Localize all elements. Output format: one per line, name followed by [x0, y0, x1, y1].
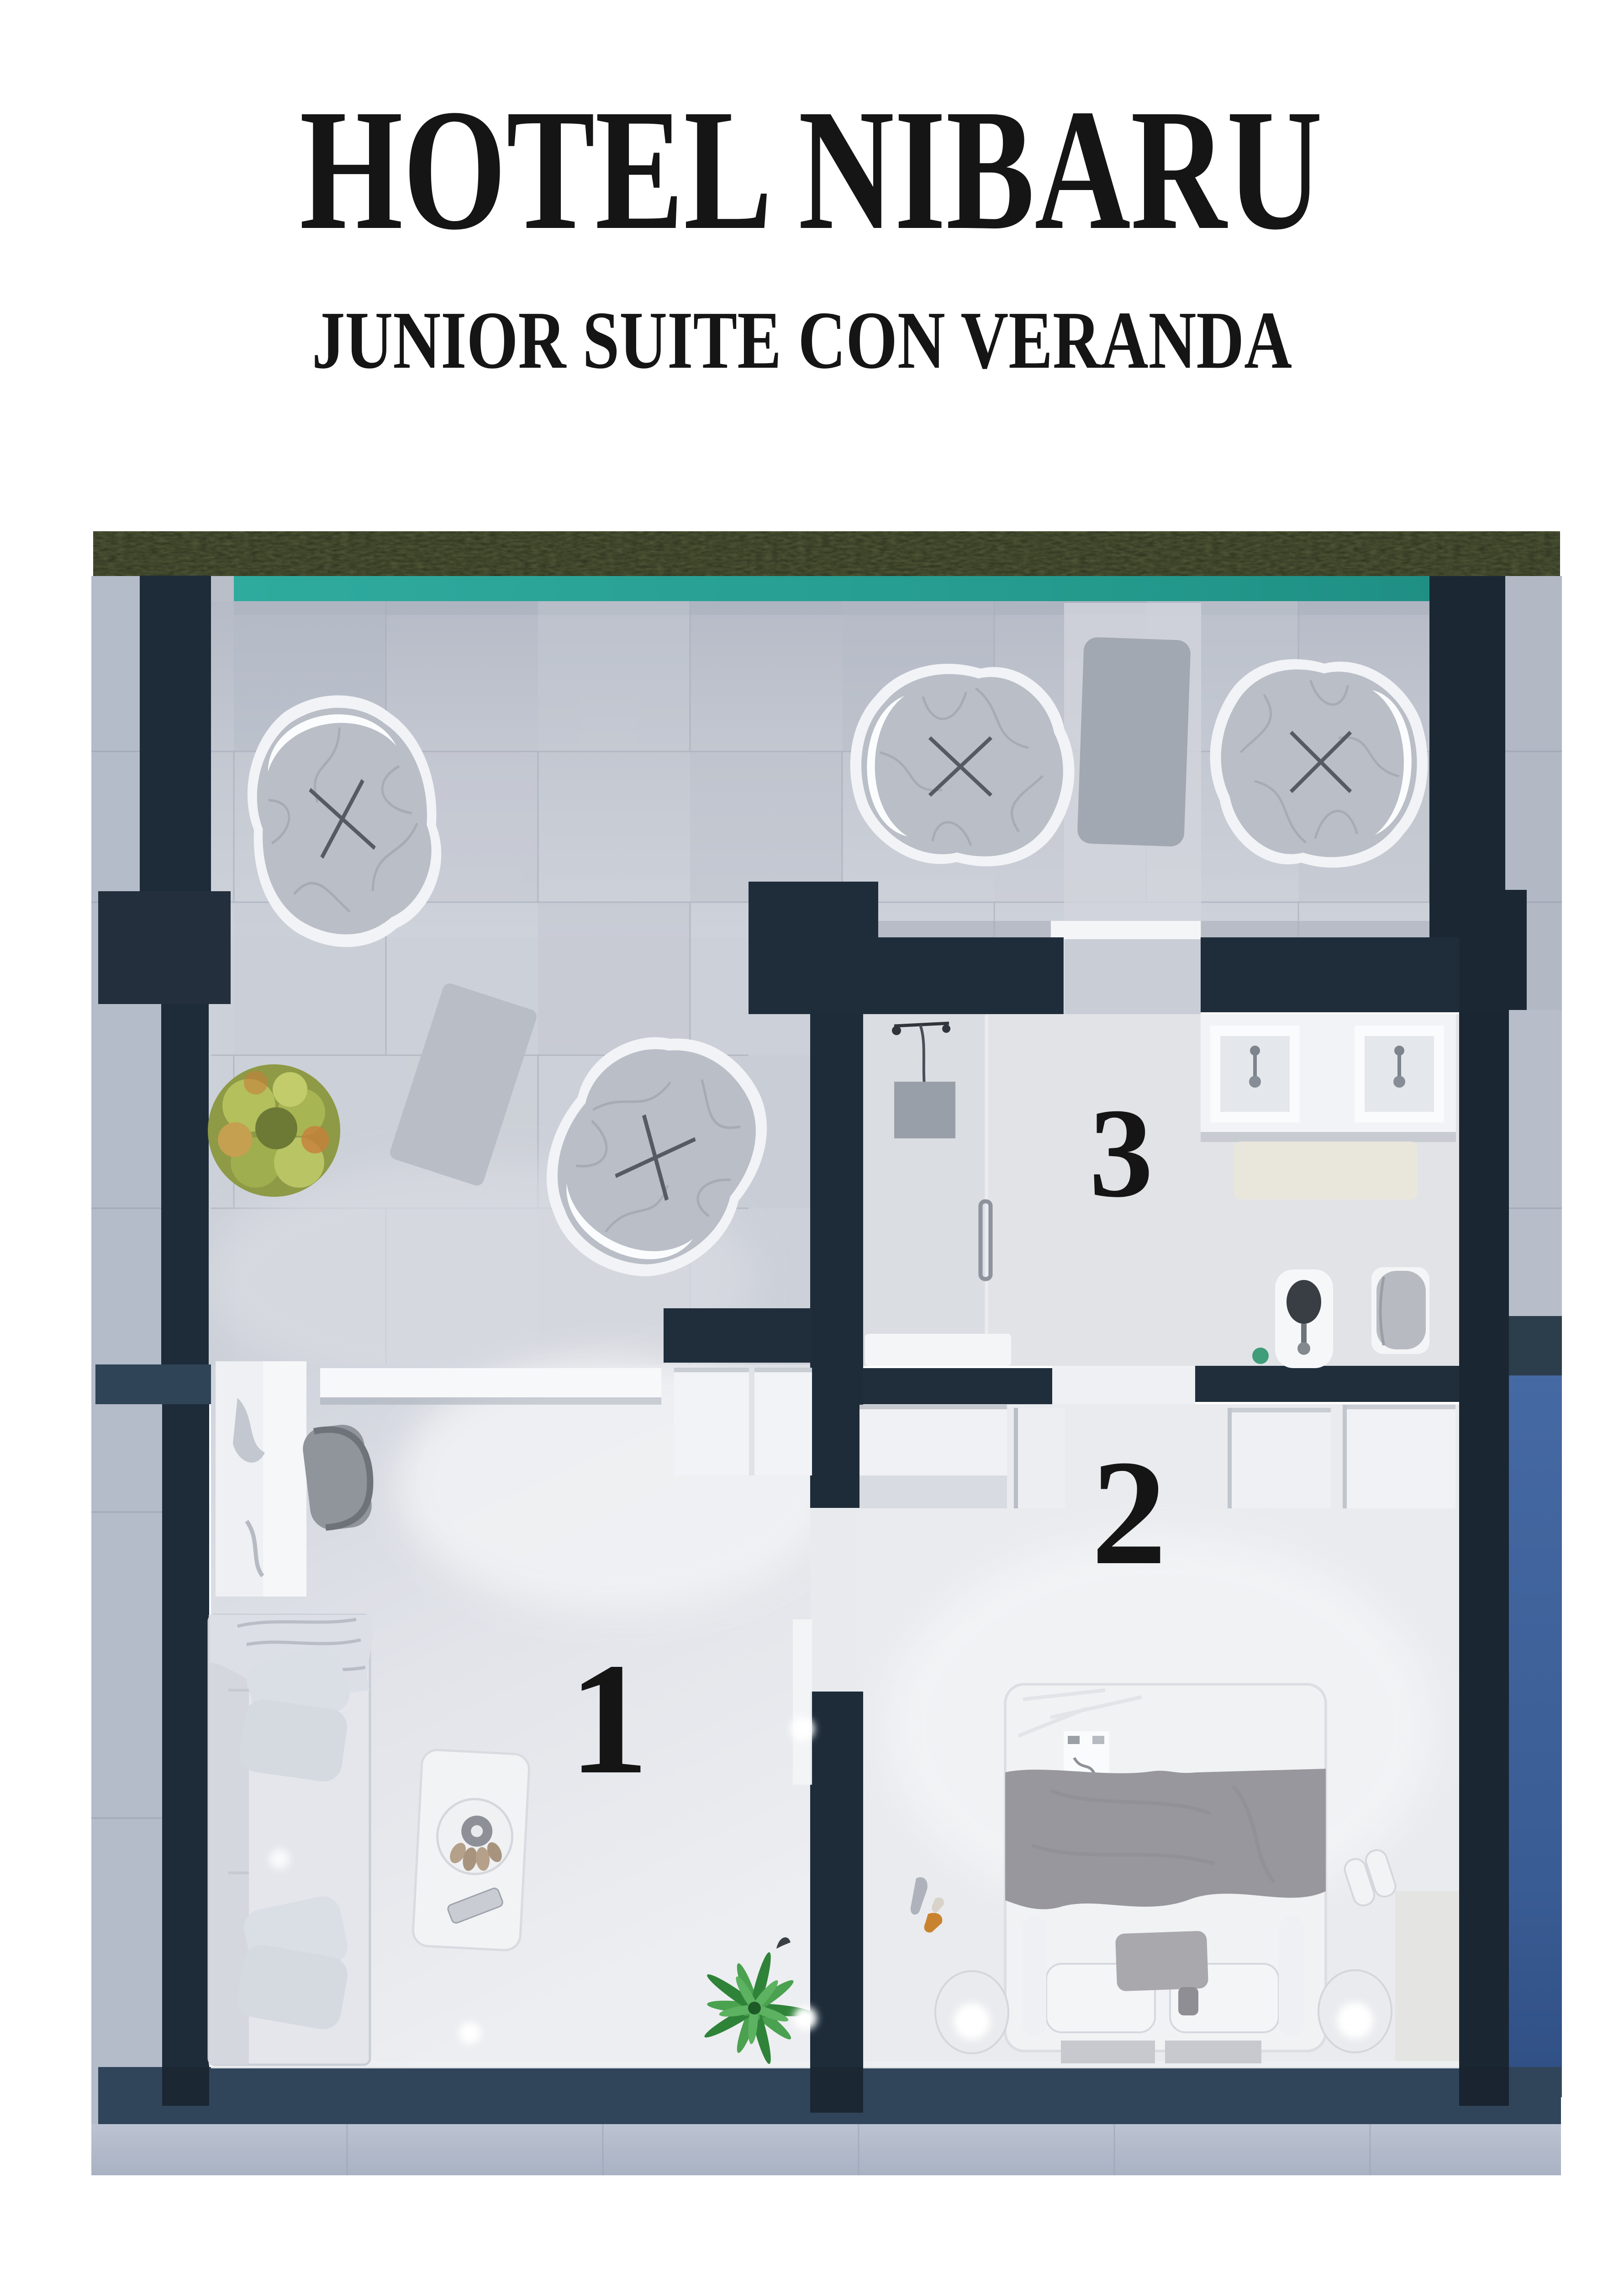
svg-text:HOTEL NIBARU: HOTEL NIBARU [300, 74, 1323, 266]
svg-text:1: 1 [569, 1630, 649, 1807]
svg-text:2: 2 [1091, 1429, 1167, 1596]
svg-text:3: 3 [1089, 1082, 1153, 1224]
svg-text:JUNIOR SUITE CON VERANDA: JUNIOR SUITE CON VERANDA [312, 295, 1292, 386]
